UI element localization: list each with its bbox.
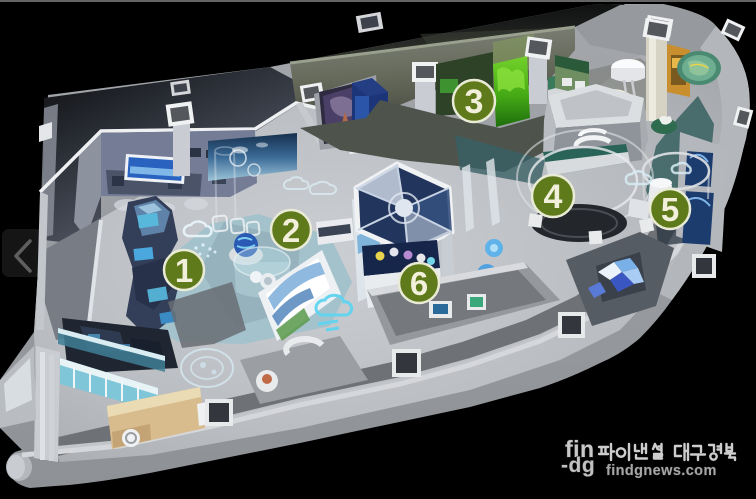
svg-text:1: 1 [175,252,193,289]
svg-text:findgnews.com: findgnews.com [606,463,717,479]
svg-text:4: 4 [544,178,563,216]
svg-text:5: 5 [661,191,679,228]
svg-text:3: 3 [465,83,484,121]
svg-text:6: 6 [410,265,428,302]
svg-text:-dg: -dg [561,454,595,477]
svg-text:2: 2 [282,212,300,249]
